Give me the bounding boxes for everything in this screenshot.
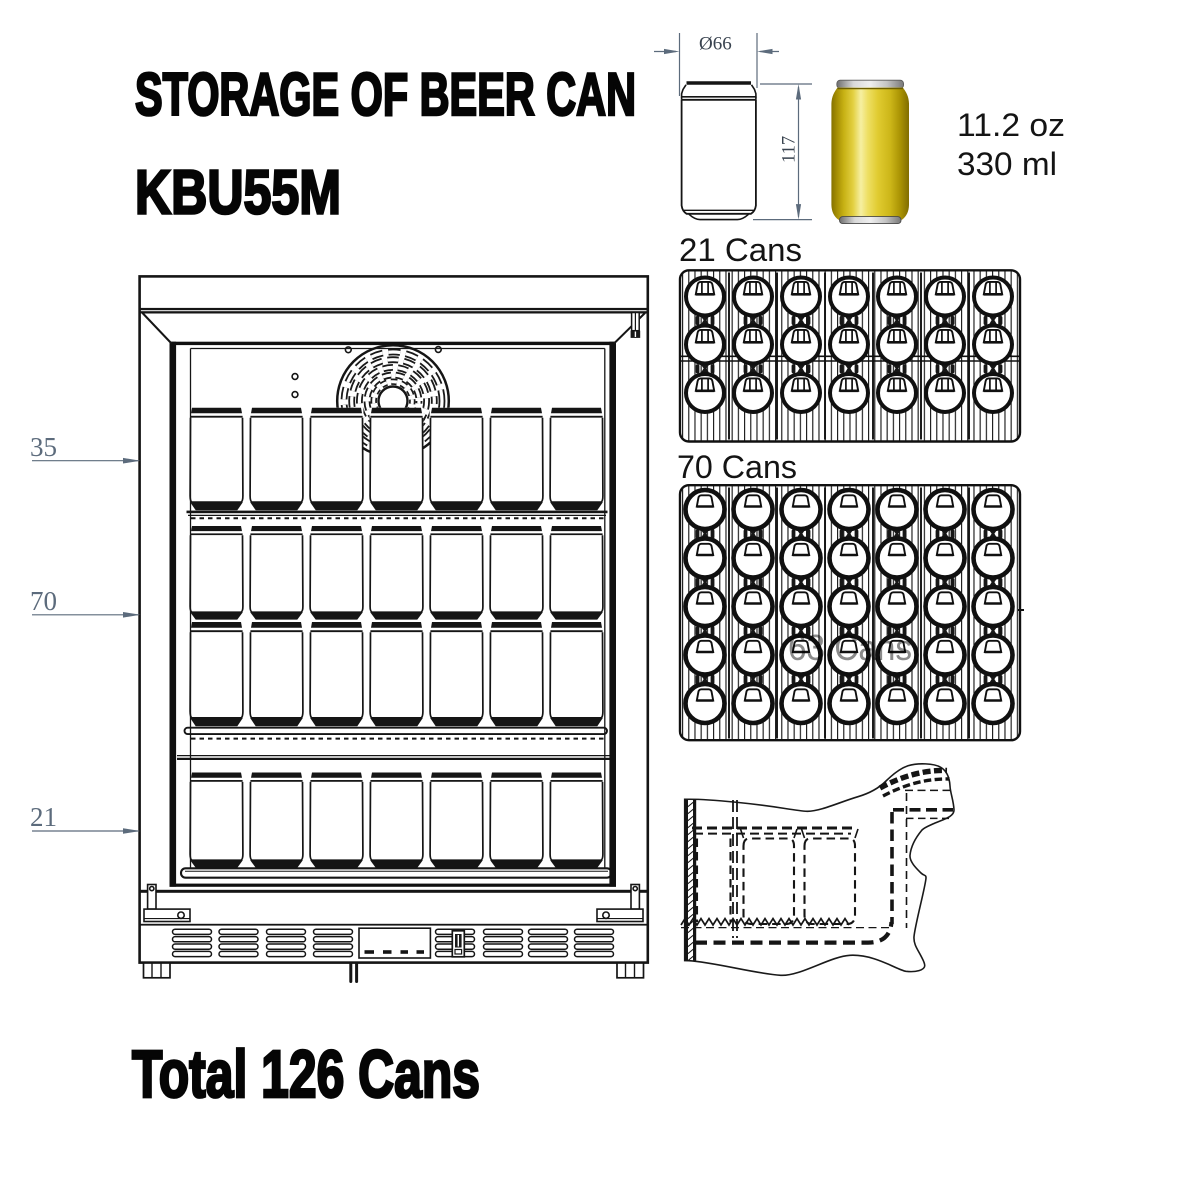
svg-text:70 Cans: 70 Cans <box>677 449 797 485</box>
svg-text:35: 35 <box>30 432 57 462</box>
svg-text:117: 117 <box>780 136 800 163</box>
svg-text:Ø66: Ø66 <box>699 34 732 55</box>
svg-text:21 Cans: 21 Cans <box>679 232 802 268</box>
svg-text:Total 126 Cans: Total 126 Cans <box>132 1037 480 1112</box>
svg-text:11.2 oz: 11.2 oz <box>957 107 1065 143</box>
svg-text:STORAGE OF BEER CAN: STORAGE OF BEER CAN <box>135 61 636 128</box>
svg-text:KBU55M: KBU55M <box>135 159 341 228</box>
svg-text:63 Cans: 63 Cans <box>788 627 912 668</box>
svg-text:70: 70 <box>30 586 57 616</box>
svg-text:21: 21 <box>30 802 57 832</box>
svg-text:330 ml: 330 ml <box>957 146 1057 182</box>
